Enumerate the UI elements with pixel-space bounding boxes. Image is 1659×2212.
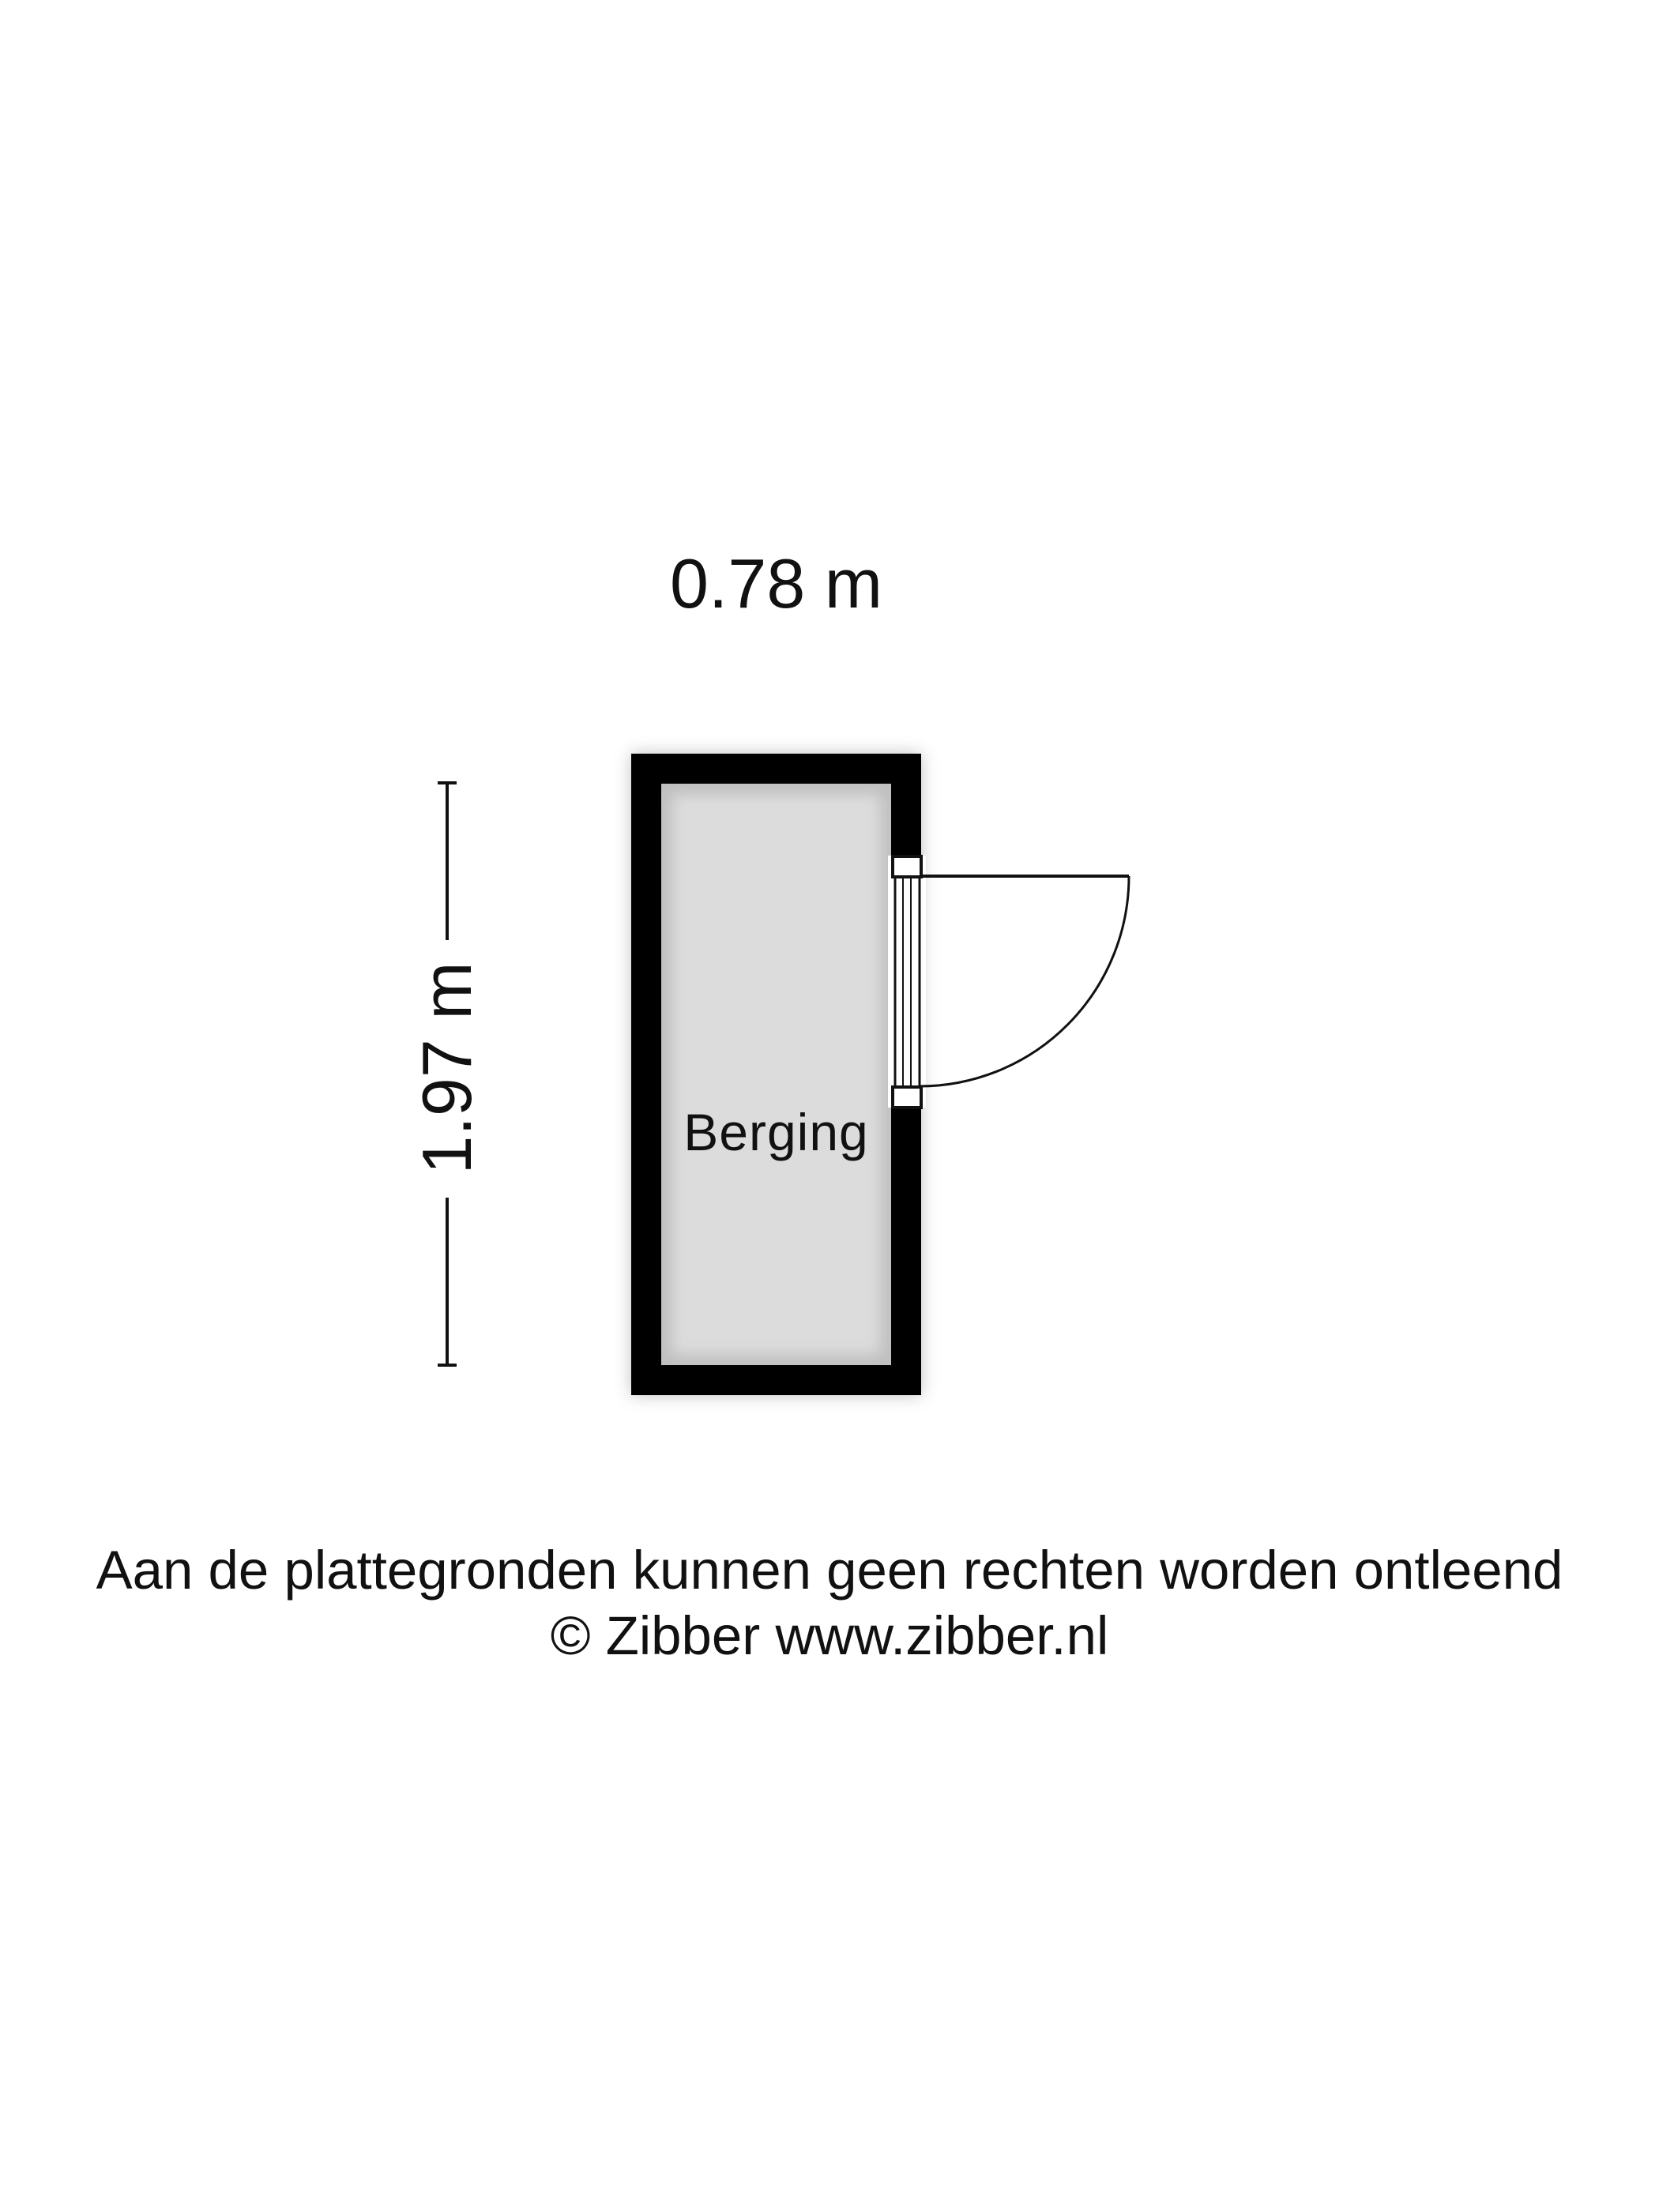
door-jamb-top — [893, 856, 921, 877]
door-frame — [895, 876, 920, 1087]
width-dimension-label: 0.78 m — [631, 544, 921, 624]
door-jamb-bottom — [893, 1087, 921, 1108]
footer: Aan de plattegronden kunnen geen rechten… — [0, 1537, 1659, 1668]
height-dimension-label: 1.97 m — [407, 942, 487, 1193]
floorplan-page: 0.78 m 1.97 m Berging Aan de plattegrond… — [0, 0, 1659, 2212]
disclaimer-text: Aan de plattegronden kunnen geen rechten… — [0, 1537, 1659, 1603]
room-label: Berging — [661, 1102, 891, 1162]
door-swing-arc — [920, 876, 1129, 1086]
copyright-text: © Zibber www.zibber.nl — [0, 1603, 1659, 1668]
room-floor — [661, 784, 891, 1365]
